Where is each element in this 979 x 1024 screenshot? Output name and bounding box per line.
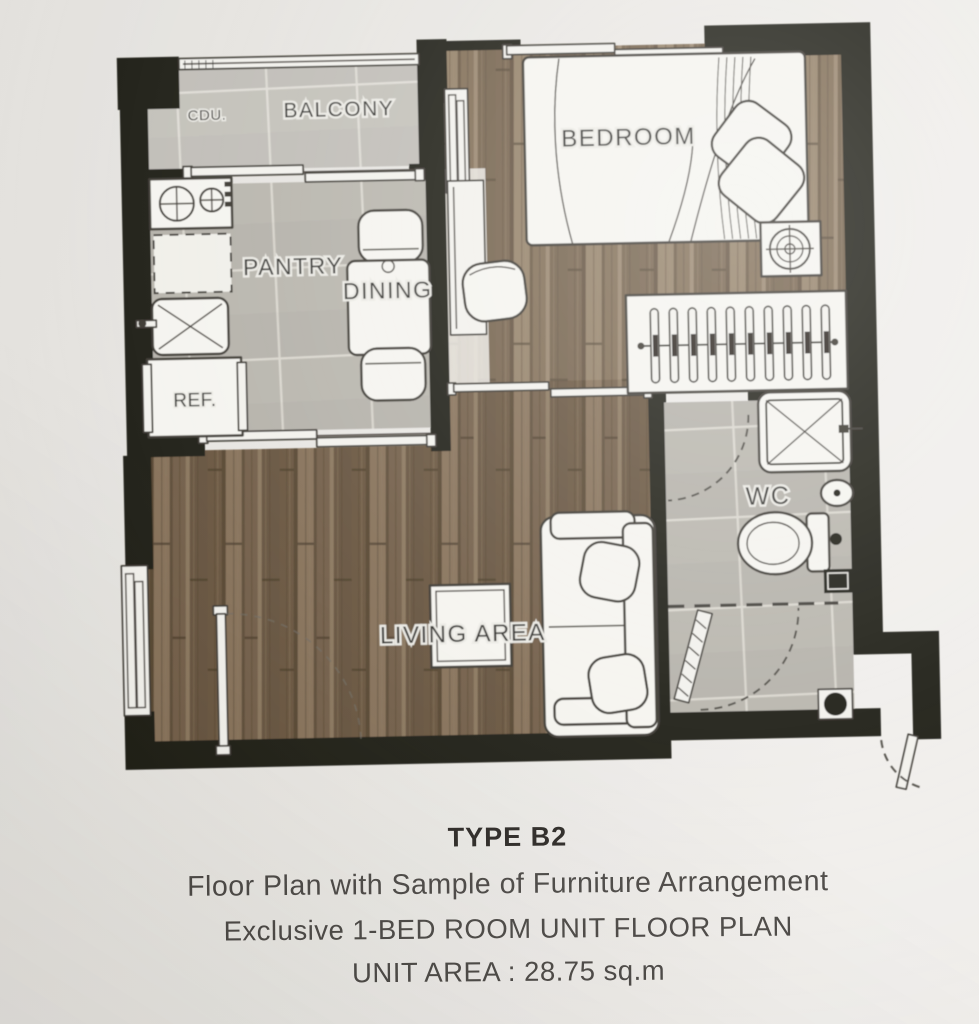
photo-shade-overlay <box>0 0 979 1024</box>
floor-plan-svg: CDU. BALCONY BEDROOM PANTRY DINING REF. … <box>0 0 979 1024</box>
floor-plan-photo: CDU. BALCONY BEDROOM PANTRY DINING REF. … <box>0 0 979 1024</box>
